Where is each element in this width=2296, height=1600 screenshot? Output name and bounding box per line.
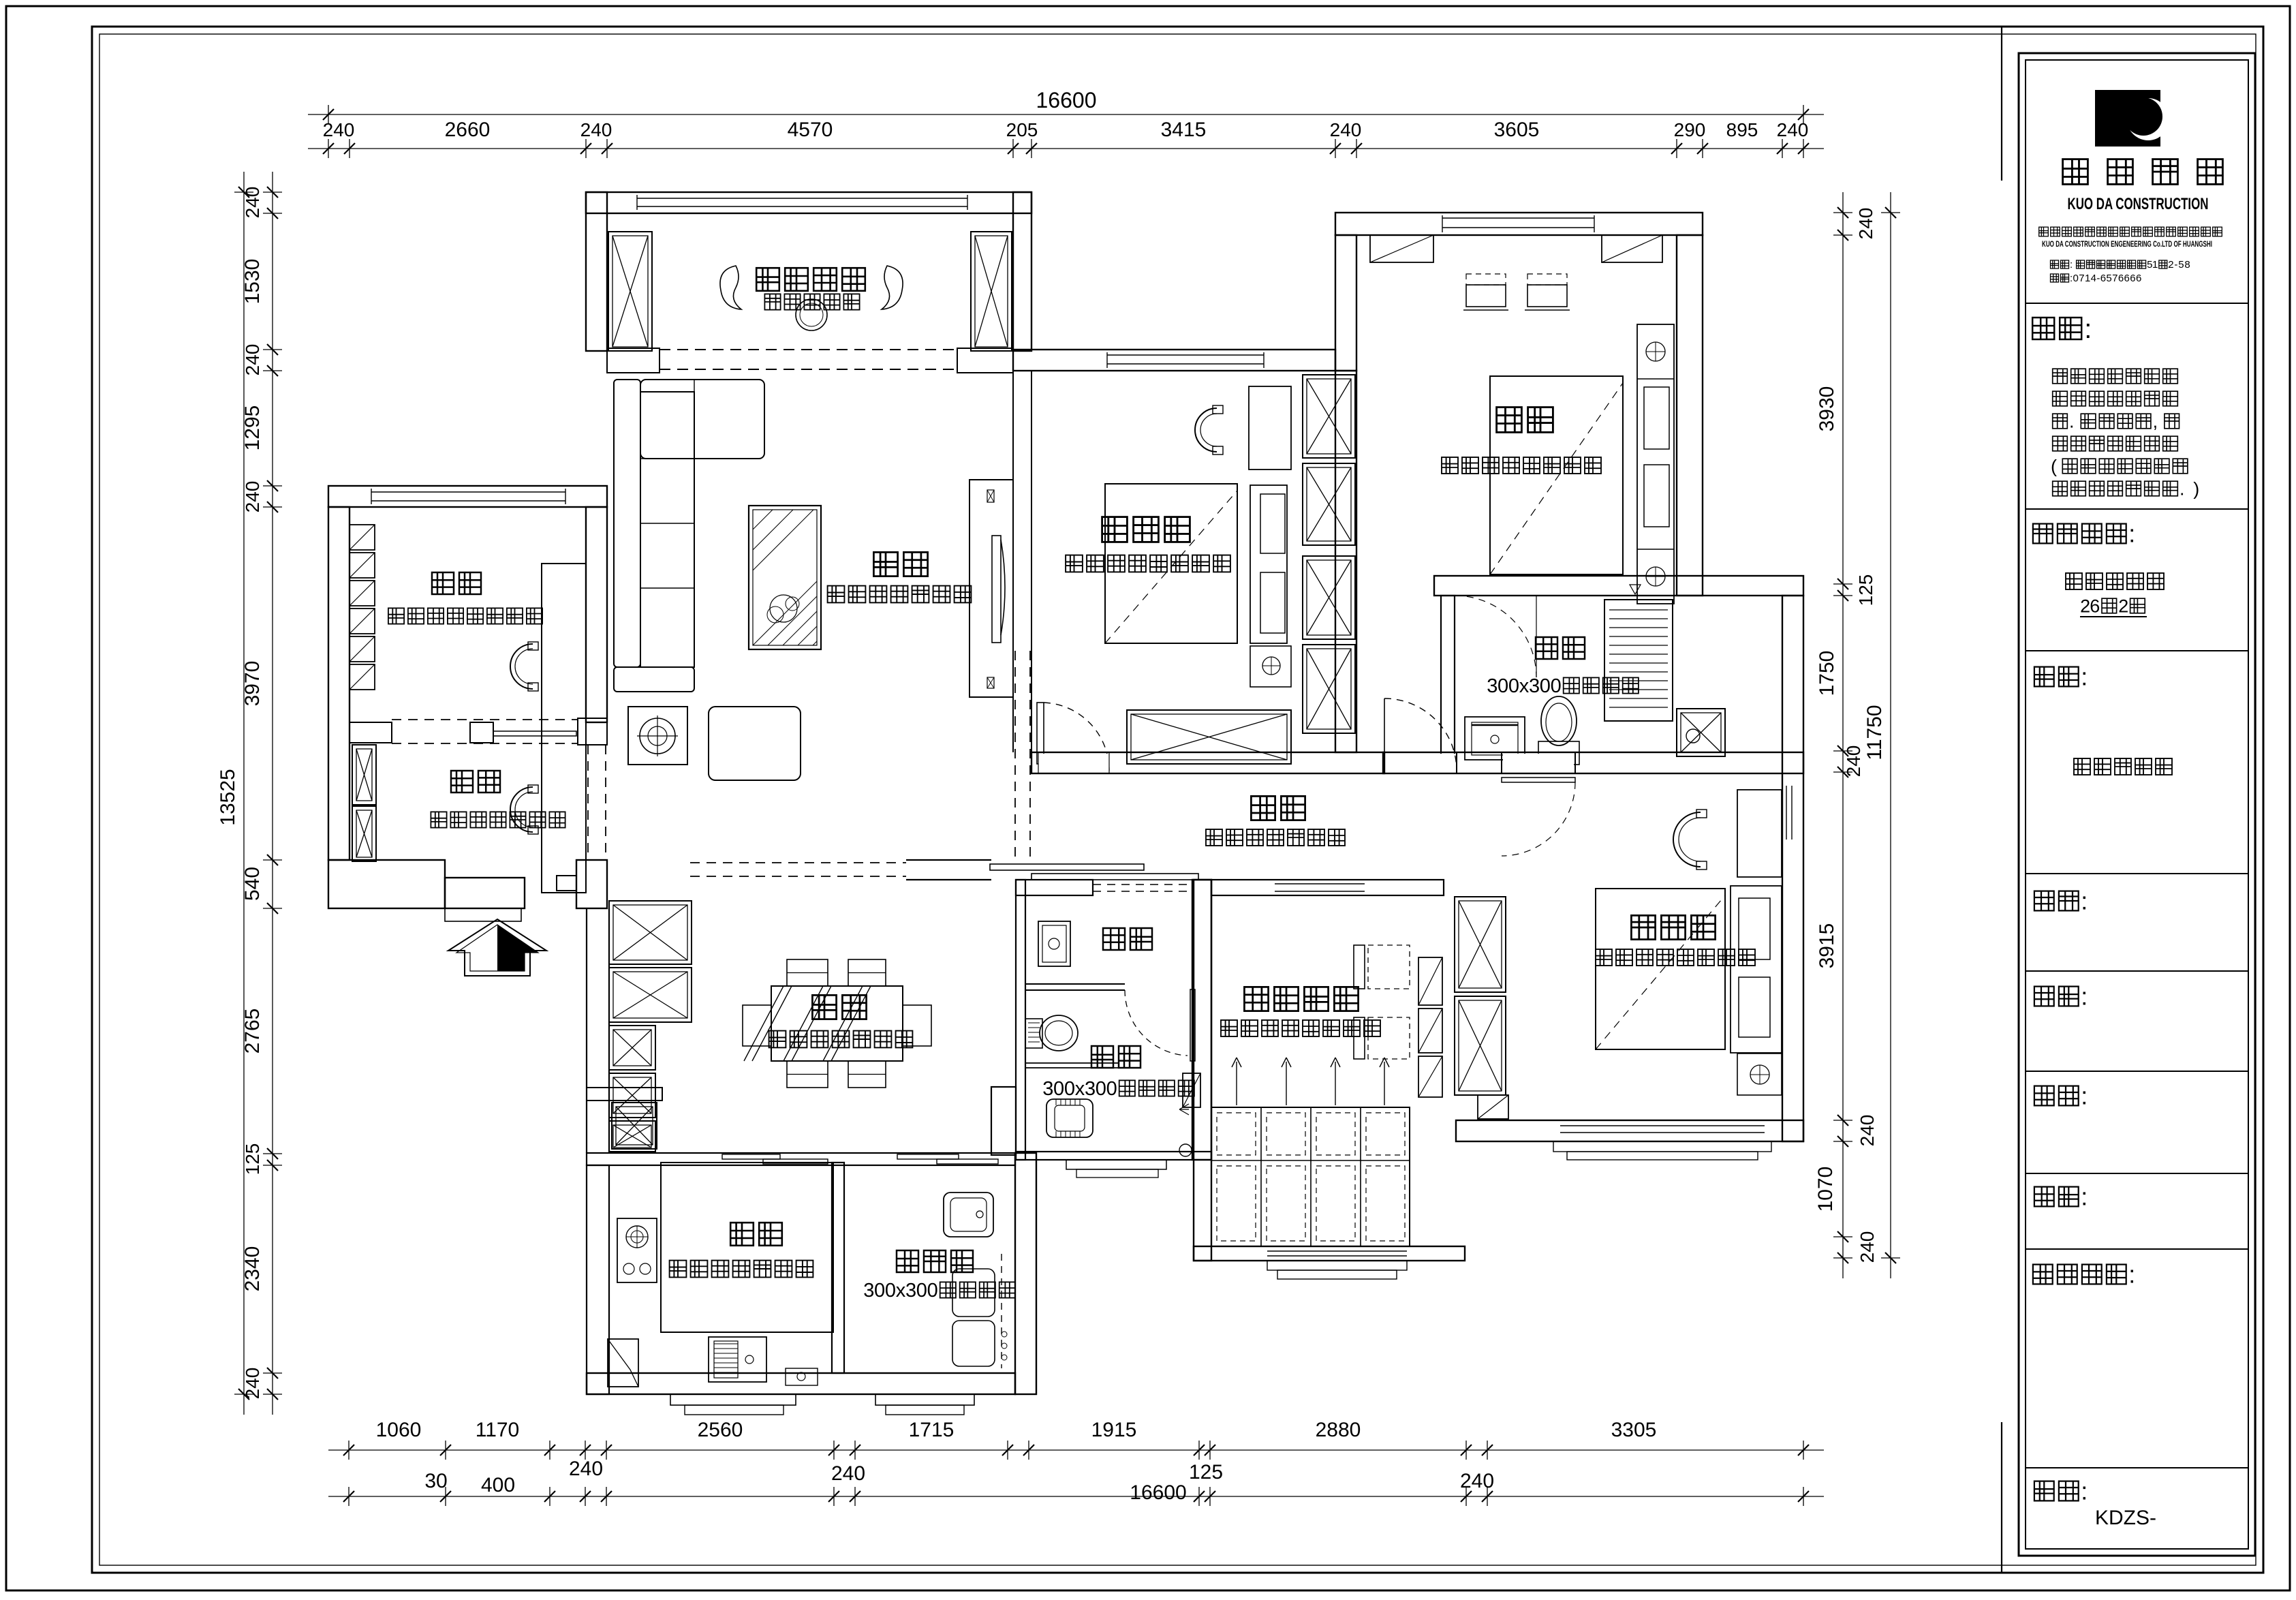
- svg-text:240: 240: [1843, 745, 1864, 778]
- svg-text::: :: [2081, 1477, 2088, 1505]
- svg-text:300x300: 300x300: [863, 1280, 938, 1302]
- svg-text:1060: 1060: [376, 1419, 422, 1441]
- svg-text:240: 240: [569, 1458, 603, 1480]
- svg-text:1530: 1530: [241, 259, 264, 305]
- svg-text:1915: 1915: [1091, 1419, 1137, 1441]
- svg-text:30: 30: [424, 1470, 447, 1492]
- svg-text:11750: 11750: [1863, 705, 1886, 760]
- svg-text::: :: [2128, 520, 2135, 548]
- svg-text:2-58: 2-58: [2168, 259, 2190, 271]
- svg-text:.: .: [2069, 412, 2075, 432]
- svg-text:125: 125: [1189, 1461, 1223, 1483]
- svg-text::0714-6576666: :0714-6576666: [2070, 273, 2141, 284]
- svg-text:240: 240: [323, 119, 355, 140]
- svg-text::: :: [2081, 1082, 2088, 1110]
- svg-text:240: 240: [831, 1462, 865, 1485]
- svg-text:240: 240: [1460, 1470, 1494, 1492]
- svg-text:240: 240: [1855, 208, 1876, 240]
- svg-text:205: 205: [1006, 119, 1038, 140]
- svg-text:,: ,: [2153, 412, 2158, 432]
- svg-text:240: 240: [242, 481, 263, 513]
- svg-text:240: 240: [1777, 119, 1809, 140]
- svg-text:1295: 1295: [241, 405, 264, 451]
- svg-text:KDZS-: KDZS-: [2095, 1507, 2156, 1529]
- svg-text:240: 240: [242, 187, 263, 219]
- svg-text:125: 125: [1855, 574, 1876, 606]
- svg-text::: :: [2128, 1261, 2135, 1289]
- svg-text:26: 26: [2080, 596, 2100, 617]
- svg-text:2880: 2880: [1316, 1419, 1361, 1441]
- svg-text::: :: [2070, 259, 2073, 271]
- svg-text:51: 51: [2147, 259, 2158, 271]
- svg-text:KUO DA CONSTRUCTION: KUO DA CONSTRUCTION: [2068, 195, 2209, 213]
- svg-text:300x300: 300x300: [1487, 675, 1562, 697]
- svg-text::: :: [2081, 983, 2088, 1011]
- svg-text:3305: 3305: [1611, 1419, 1657, 1441]
- svg-text:16600: 16600: [1130, 1481, 1186, 1504]
- svg-text::: :: [2084, 314, 2092, 344]
- svg-text:400: 400: [481, 1474, 515, 1496]
- svg-text:240: 240: [1330, 119, 1362, 140]
- svg-text:300x300: 300x300: [1042, 1078, 1117, 1100]
- svg-text:240: 240: [1857, 1231, 1878, 1263]
- svg-text::: :: [2081, 1183, 2088, 1211]
- svg-text:2560: 2560: [698, 1419, 743, 1441]
- svg-text:240: 240: [1857, 1115, 1878, 1147]
- svg-text:3930: 3930: [1816, 386, 1838, 432]
- svg-text:3915: 3915: [1816, 923, 1838, 969]
- svg-text:1070: 1070: [1814, 1167, 1837, 1212]
- svg-text:1715: 1715: [909, 1419, 955, 1441]
- svg-text::: :: [2081, 663, 2088, 691]
- svg-text:895: 895: [1726, 119, 1758, 140]
- svg-text:KUO DA CONSTRUCTION ENGENEERIN: KUO DA CONSTRUCTION ENGENEERING Co.LTD O…: [2042, 239, 2212, 249]
- svg-text:16600: 16600: [1036, 88, 1097, 112]
- svg-text:2660: 2660: [445, 119, 491, 141]
- svg-text:3605: 3605: [1494, 119, 1540, 141]
- svg-text::: :: [2081, 887, 2088, 915]
- svg-text:240: 240: [242, 1368, 263, 1400]
- svg-text:3415: 3415: [1161, 119, 1207, 141]
- svg-text:1170: 1170: [476, 1419, 520, 1441]
- svg-text:540: 540: [241, 867, 264, 901]
- svg-text:(: (: [2051, 457, 2057, 477]
- svg-text:1750: 1750: [1816, 651, 1838, 696]
- svg-text:2340: 2340: [241, 1246, 264, 1292]
- svg-text:2765: 2765: [241, 1009, 264, 1054]
- svg-text:4570: 4570: [788, 119, 833, 141]
- svg-text:13525: 13525: [217, 769, 239, 825]
- svg-text:290: 290: [1674, 119, 1706, 140]
- svg-text:240: 240: [580, 119, 612, 140]
- svg-text:125: 125: [242, 1143, 263, 1175]
- svg-text:240: 240: [242, 344, 263, 376]
- svg-text:2: 2: [2118, 596, 2128, 617]
- svg-text:3970: 3970: [241, 661, 264, 707]
